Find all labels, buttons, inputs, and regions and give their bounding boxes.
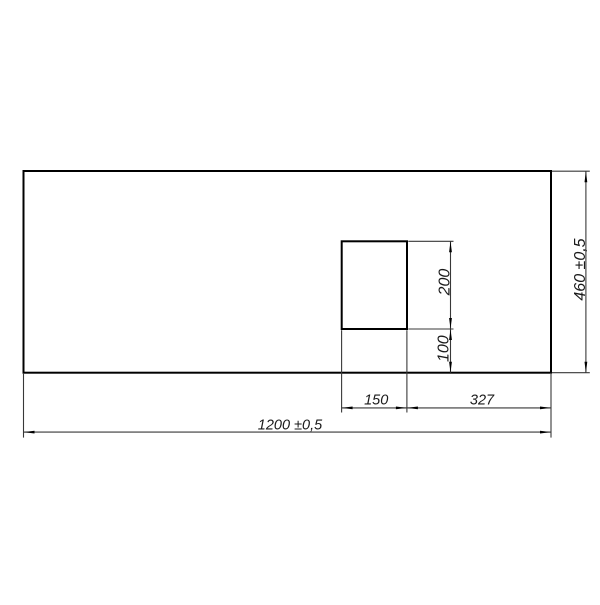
- svg-text:100: 100: [436, 335, 453, 362]
- svg-text:327: 327: [470, 393, 495, 409]
- svg-text:1200 ±0,5: 1200 ±0,5: [258, 418, 323, 434]
- svg-text:150: 150: [364, 393, 388, 409]
- svg-text:200: 200: [437, 269, 454, 297]
- svg-text:460 ±0,5: 460 ±0,5: [572, 238, 589, 300]
